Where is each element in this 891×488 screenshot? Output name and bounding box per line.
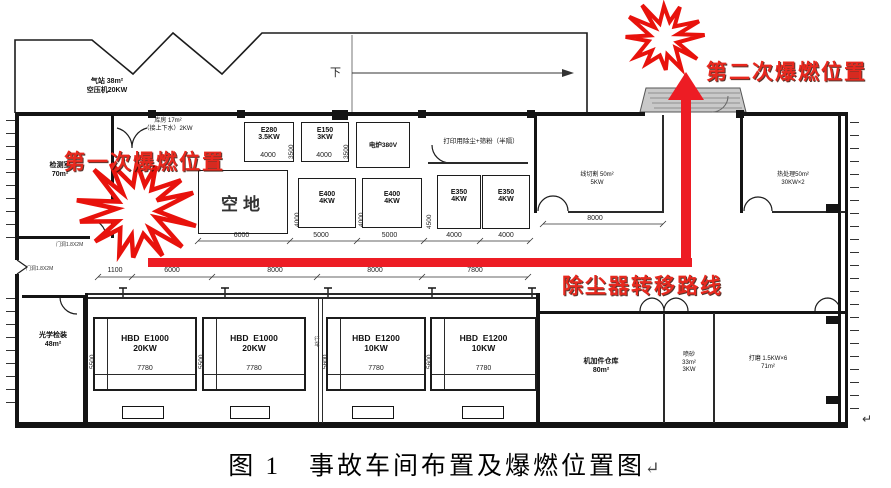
second-explosion-label: 第二次爆燃位置 bbox=[706, 56, 867, 86]
route-line-vertical bbox=[681, 94, 691, 266]
second-explosion-star bbox=[626, 5, 705, 70]
first-explosion-star bbox=[77, 163, 196, 258]
route-arrow-head bbox=[668, 72, 704, 100]
route-line-horizontal bbox=[148, 258, 692, 267]
workshop-floor-plan: 气站 38m² 空压机20KW 下 库房 17m² （接上下水）2KW 检测室 … bbox=[0, 0, 891, 488]
route-label: 除尘器转移路线 bbox=[562, 270, 723, 300]
first-explosion-label: 第一次爆燃位置 bbox=[64, 146, 225, 176]
